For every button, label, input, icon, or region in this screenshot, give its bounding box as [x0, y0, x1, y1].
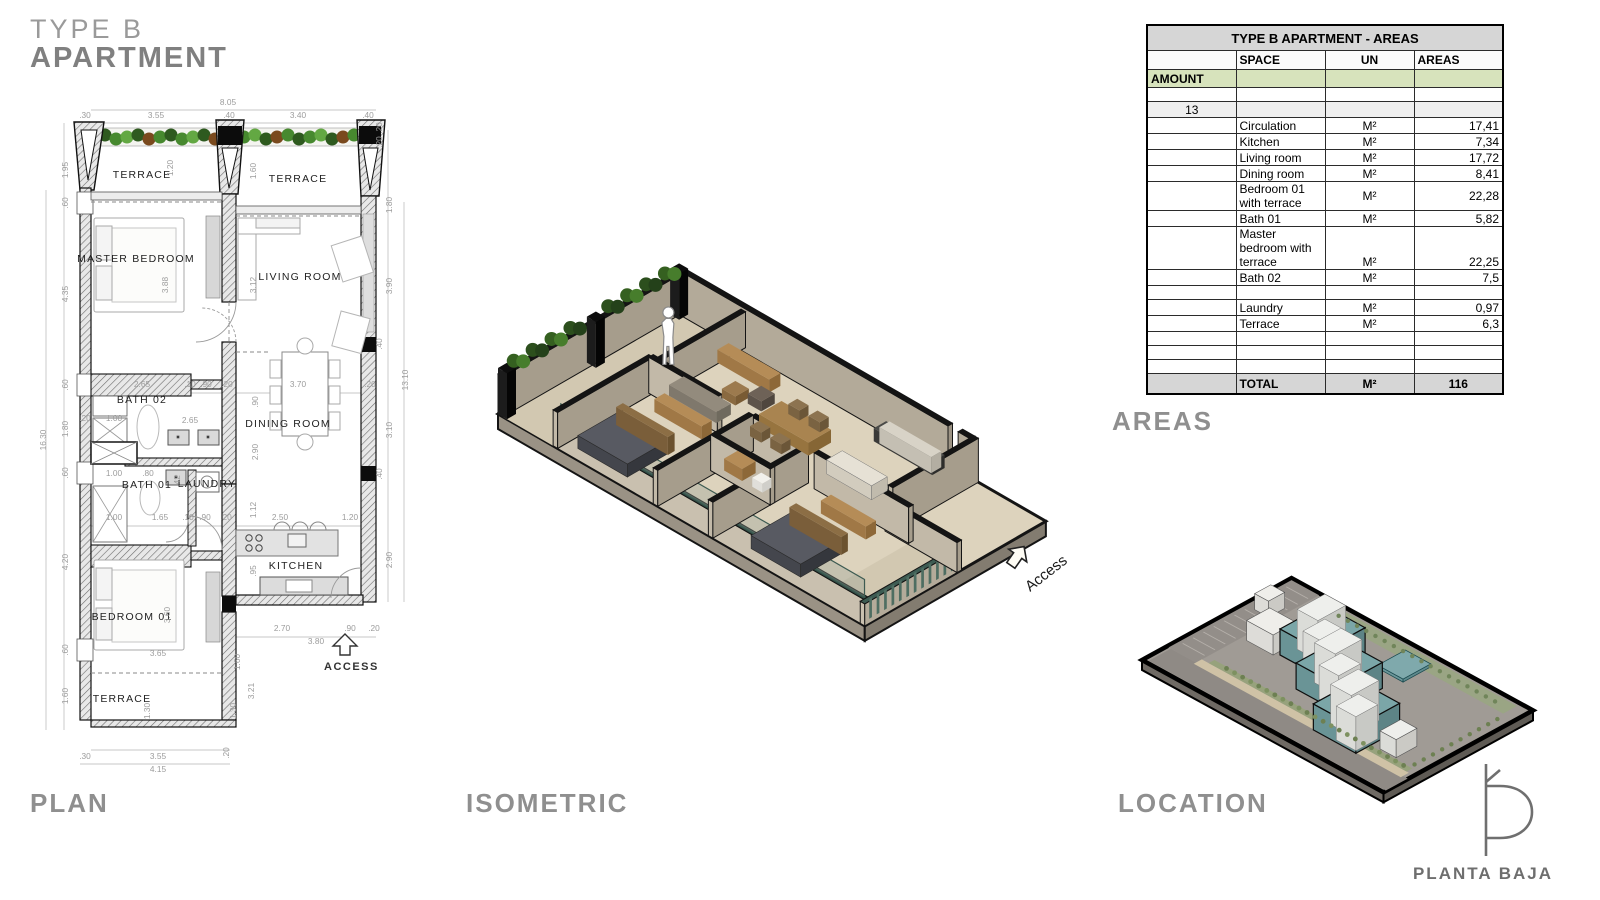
table-cell [1325, 70, 1414, 88]
dimension-label: 16.30 [38, 429, 48, 450]
dimension-label: .90 [250, 396, 260, 408]
area-value: 7,5 [1414, 270, 1503, 286]
dimension-label: 1.00 [106, 468, 123, 478]
plan-access-label: ACCESS [324, 661, 379, 673]
dimension-label: .20 [374, 122, 384, 134]
area-value: 22,28 [1414, 182, 1503, 211]
table-cell [1325, 102, 1414, 118]
dimension-label: .30 [79, 110, 91, 120]
space-name: Bath 02 [1236, 270, 1325, 286]
dimension-label: 1.20 [165, 160, 175, 177]
table-cell [1414, 88, 1503, 102]
sheet-title-line1: TYPE B [30, 14, 144, 45]
dimension-label: 3.55 [148, 110, 165, 120]
table-cell [1325, 88, 1414, 102]
col-header-space: SPACE [1236, 51, 1325, 70]
space-name: Kitchen [1236, 134, 1325, 150]
dimension-label: .20 [221, 747, 231, 759]
planta-baja-logo-icon [1442, 752, 1572, 864]
presentation-sheet: { "title": {"line1": "TYPE B", "line2": … [0, 0, 1600, 900]
area-value: 17,72 [1414, 150, 1503, 166]
space-name: Bath 01 [1236, 211, 1325, 227]
dimension-label: 3.70 [290, 379, 307, 389]
table-cell [1414, 70, 1503, 88]
room-label: MASTER BEDROOM [77, 253, 195, 265]
dimension-label: 3.40 [290, 110, 307, 120]
dimension-label: .40 [374, 468, 384, 480]
dimension-label: 1.00 [106, 512, 123, 522]
table-cell [1147, 166, 1236, 182]
room-label: TERRACE [113, 169, 172, 181]
table-cell [1147, 211, 1236, 227]
unit-value: M² [1325, 211, 1414, 227]
dimension-label: .40 [374, 338, 384, 350]
dimension-label: .40 [362, 110, 374, 120]
space-name: Terrace [1236, 316, 1325, 332]
unit-value: M² [1325, 150, 1414, 166]
table-cell [1147, 346, 1236, 360]
table-cell [1147, 316, 1236, 332]
room-label: TERRACE [269, 173, 328, 185]
total-unit: M² [1325, 374, 1414, 395]
dimension-label: 3.80 [308, 636, 325, 646]
areas-table: TYPE B APARTMENT - AREASSPACEUNAREASAMOU… [1146, 24, 1504, 395]
dimension-label: .60 [60, 467, 70, 479]
dimension-label: .30 [79, 751, 91, 761]
col-header-un: UN [1325, 51, 1414, 70]
table-cell [1236, 88, 1325, 102]
room-label: BATH 02 [117, 394, 167, 406]
dimension-label: 3.10 [384, 422, 394, 439]
table-cell [1236, 102, 1325, 118]
table-cell [1147, 88, 1236, 102]
dimension-label: .10 [184, 379, 196, 389]
dimension-label: 1.80 [384, 197, 394, 214]
room-label: DINING ROOM [245, 418, 331, 430]
sheet-title-line2: APARTMENT [30, 42, 228, 75]
space-name: Laundry [1236, 300, 1325, 316]
space-name: Bedroom 01 with terrace [1236, 182, 1325, 211]
dimension-label: .20 [221, 379, 233, 389]
area-value: 0,97 [1414, 300, 1503, 316]
unit-value [1325, 360, 1414, 374]
space-name: Living room [1236, 150, 1325, 166]
room-label: LIVING ROOM [258, 271, 341, 283]
space-name [1236, 332, 1325, 346]
table-cell [1147, 360, 1236, 374]
dimension-label: .10 [182, 512, 194, 522]
area-value [1414, 360, 1503, 374]
planta-baja-logo-text: PLANTA BAJA [1398, 864, 1568, 884]
room-label: LAUNDRY [178, 478, 236, 490]
dimension-label: 1.65 [152, 512, 169, 522]
dimension-label: 3.12 [248, 277, 258, 294]
table-cell [1147, 270, 1236, 286]
section-label-areas: AREAS [1112, 406, 1213, 437]
dimension-label: 3.88 [160, 277, 170, 294]
unit-value: M² [1325, 316, 1414, 332]
room-label: BEDROOM 01 [92, 611, 173, 623]
space-name: Dining room [1236, 166, 1325, 182]
dimension-label: 4.35 [60, 286, 70, 303]
unit-value: M² [1325, 118, 1414, 134]
area-value [1414, 346, 1503, 360]
table-cell [1147, 118, 1236, 134]
room-label: KITCHEN [269, 560, 324, 572]
area-value: 8,41 [1414, 166, 1503, 182]
amount-value: 13 [1147, 102, 1236, 118]
table-cell [1236, 70, 1325, 88]
unit-value: M² [1325, 166, 1414, 182]
dimension-label: 2.50 [272, 512, 289, 522]
area-value [1414, 286, 1503, 300]
unit-value [1325, 346, 1414, 360]
dimension-label: 1.20 [342, 512, 359, 522]
space-name: Master bedroom with terrace [1236, 227, 1325, 270]
dimension-label: .42 [172, 475, 182, 487]
total-label: TOTAL [1236, 374, 1325, 395]
dimension-label: .60 [60, 197, 70, 209]
dimension-label: .20 [374, 136, 384, 148]
dimension-label: 3.60 [162, 607, 172, 624]
section-label-isometric: ISOMETRIC [466, 788, 628, 819]
table-cell [1147, 374, 1236, 395]
dimension-label: .40 [223, 110, 235, 120]
area-value: 7,34 [1414, 134, 1503, 150]
dimension-label: 1.60 [232, 654, 242, 671]
dimension-label: 2.70 [274, 623, 291, 633]
total-value: 116 [1414, 374, 1503, 395]
unit-value [1325, 286, 1414, 300]
space-name [1236, 286, 1325, 300]
dimension-label: 1.00 [106, 413, 123, 423]
table-cell [1147, 227, 1236, 270]
dimension-label: .90 [199, 512, 211, 522]
dimension-label: 4.15 [150, 764, 167, 774]
dimension-label: 1.95 [60, 162, 70, 179]
dimension-label: 13.10 [400, 369, 410, 390]
area-value [1414, 332, 1503, 346]
dimension-label: 2.65 [134, 379, 151, 389]
dimension-label: .60 [60, 644, 70, 656]
unit-value: M² [1325, 227, 1414, 270]
dimension-label: 1.60 [248, 163, 258, 180]
floor-plan-drawing: TERRACETERRACEMASTER BEDROOMLIVING ROOMB… [30, 90, 430, 780]
dimension-label: 3.90 [384, 278, 394, 295]
table-cell [1147, 51, 1236, 70]
dimension-label: .80 [142, 468, 154, 478]
dimension-label: 1.60 [60, 688, 70, 705]
table-cell [1147, 286, 1236, 300]
dimension-label: 2.65 [182, 415, 199, 425]
isometric-access-label: Access [1022, 552, 1071, 595]
dimension-label: 2.90 [384, 552, 394, 569]
dimension-label: 1.12 [248, 502, 258, 519]
unit-value [1325, 332, 1414, 346]
dimension-label: 3.21 [246, 683, 256, 700]
dimension-label: .20 [368, 623, 380, 633]
space-name [1236, 360, 1325, 374]
table-cell [1414, 102, 1503, 118]
dimension-label: .60 [60, 379, 70, 391]
dimension-label: .90 [344, 623, 356, 633]
row-header-amount: AMOUNT [1147, 70, 1236, 88]
table-cell [1147, 182, 1236, 211]
dimension-label: 3.55 [150, 751, 167, 761]
table-cell [1147, 300, 1236, 316]
dimension-label: .20 [364, 379, 376, 389]
dimension-label: 4.20 [60, 554, 70, 571]
dimension-label: .20 [220, 512, 232, 522]
section-label-plan: PLAN [30, 788, 109, 819]
table-cell [1147, 150, 1236, 166]
dimension-label: .95 [248, 565, 258, 577]
areas-table-title: TYPE B APARTMENT - AREAS [1147, 25, 1503, 51]
table-cell [1147, 134, 1236, 150]
unit-value: M² [1325, 134, 1414, 150]
room-label: BATH 01 [122, 479, 172, 491]
dimension-label: 1.30 [142, 703, 152, 720]
table-cell [1147, 332, 1236, 346]
area-value: 5,82 [1414, 211, 1503, 227]
space-name [1236, 346, 1325, 360]
area-value: 6,3 [1414, 316, 1503, 332]
dimension-label: 1.30 [228, 703, 238, 720]
isometric-drawing: Access [460, 262, 1120, 742]
space-name: Circulation [1236, 118, 1325, 134]
dimension-label: 2.90 [250, 444, 260, 461]
dimension-label: .90 [200, 379, 212, 389]
unit-value: M² [1325, 182, 1414, 211]
area-value: 22,25 [1414, 227, 1503, 270]
dimension-label: 1.80 [60, 421, 70, 438]
dimension-label: 8.05 [220, 97, 237, 107]
dimension-label: .20 [79, 413, 91, 423]
area-value: 17,41 [1414, 118, 1503, 134]
unit-value: M² [1325, 300, 1414, 316]
dimension-label: 3.65 [150, 648, 167, 658]
col-header-areas: AREAS [1414, 51, 1503, 70]
unit-value: M² [1325, 270, 1414, 286]
